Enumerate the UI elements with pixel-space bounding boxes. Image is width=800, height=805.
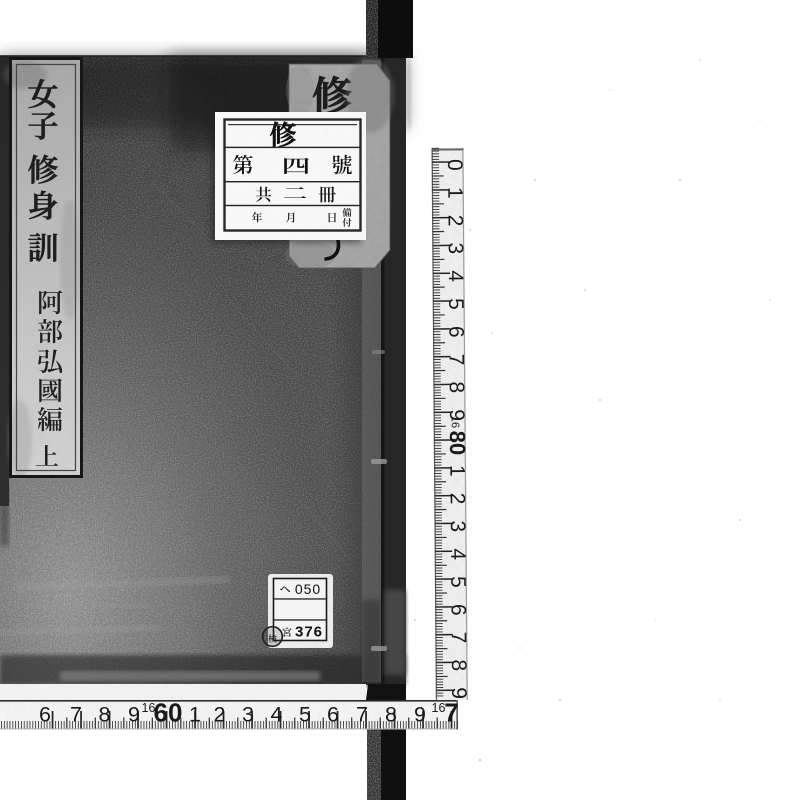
svg-text:3: 3	[446, 520, 469, 532]
svg-text:4: 4	[446, 548, 469, 560]
svg-text:6: 6	[327, 703, 339, 727]
svg-text:8: 8	[445, 381, 468, 393]
svg-text:7: 7	[447, 632, 470, 644]
svg-text:2: 2	[446, 493, 469, 505]
svg-text:8: 8	[99, 703, 111, 727]
svg-text:7: 7	[70, 703, 82, 727]
svg-text:9: 9	[128, 703, 140, 727]
svg-text:376: 376	[295, 624, 323, 641]
svg-text:共: 共	[255, 182, 272, 206]
svg-text:検: 検	[268, 632, 277, 645]
svg-text:5: 5	[444, 298, 467, 310]
svg-text:ヘ: ヘ	[280, 581, 291, 597]
svg-text:第: 第	[233, 150, 254, 180]
svg-text:四: 四	[282, 151, 311, 180]
svg-text:9: 9	[414, 703, 426, 727]
svg-text:號: 號	[332, 150, 353, 180]
svg-text:1: 1	[445, 465, 468, 477]
svg-text:9: 9	[447, 687, 470, 699]
svg-text:1: 1	[189, 703, 201, 727]
svg-text:年: 年	[252, 210, 263, 226]
svg-text:二: 二	[283, 181, 307, 204]
svg-text:5: 5	[299, 703, 311, 727]
svg-text:80: 80	[445, 431, 470, 456]
svg-text:7: 7	[356, 703, 368, 727]
svg-text:60: 60	[154, 698, 183, 728]
svg-text:5: 5	[446, 576, 469, 588]
svg-text:6: 6	[39, 703, 51, 727]
svg-text:2: 2	[443, 215, 466, 227]
svg-text:1: 1	[443, 187, 466, 199]
svg-text:6: 6	[444, 326, 467, 338]
svg-text:身: 身	[28, 181, 59, 226]
svg-text:月: 月	[286, 210, 297, 226]
svg-text:0: 0	[443, 159, 466, 171]
svg-text:訓: 訓	[28, 223, 59, 268]
svg-text:子: 子	[28, 101, 59, 146]
svg-text:付: 付	[342, 215, 352, 229]
svg-text:修: 修	[270, 114, 297, 153]
svg-text:7: 7	[445, 354, 468, 366]
svg-text:編: 編	[37, 400, 63, 437]
svg-text:4: 4	[271, 703, 283, 727]
svg-text:3: 3	[444, 242, 467, 254]
svg-text:7: 7	[444, 698, 458, 728]
svg-text:8: 8	[385, 703, 397, 727]
svg-text:冊: 冊	[318, 181, 336, 207]
svg-text:16: 16	[449, 416, 461, 428]
svg-text:8: 8	[447, 659, 470, 671]
svg-text:2: 2	[214, 703, 226, 727]
svg-text:4: 4	[444, 270, 467, 282]
svg-text:050: 050	[295, 581, 321, 597]
svg-text:宮: 宮	[282, 624, 292, 639]
svg-text:3: 3	[242, 703, 254, 727]
svg-text:上: 上	[35, 437, 59, 472]
svg-text:日: 日	[327, 210, 338, 226]
svg-text:6: 6	[447, 604, 470, 616]
